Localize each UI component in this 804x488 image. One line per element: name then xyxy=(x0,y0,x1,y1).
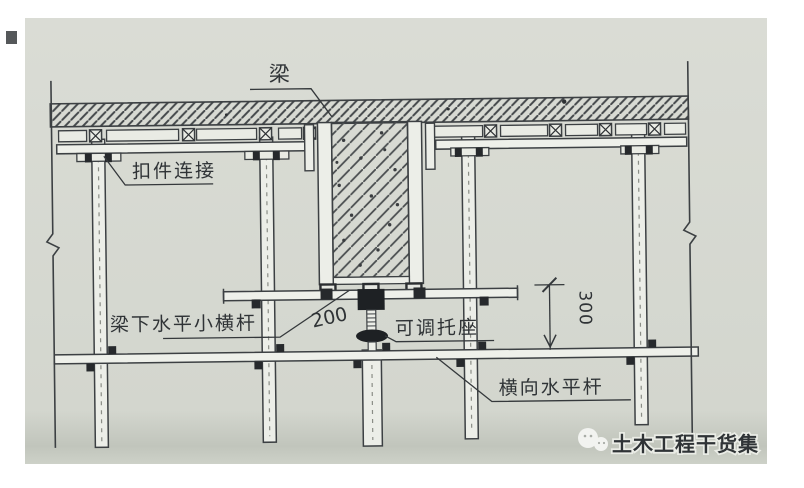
beam-bottom-bar-label: 梁下水平小横杆 xyxy=(110,312,257,336)
post-2 xyxy=(260,137,277,442)
beam-clamp-left xyxy=(304,125,314,171)
beam-side-form-right xyxy=(407,121,423,283)
beam-concrete-section xyxy=(331,122,409,278)
post-1 xyxy=(92,139,109,447)
scanned-page: 梁 扣件连接 梁下水平小横杆 200 可调托座 横向水平杆 xyxy=(0,0,804,488)
scan-artifact-mark xyxy=(6,31,17,44)
beam-side-form-left xyxy=(317,122,333,284)
beam-clamp-right xyxy=(425,123,435,169)
dim-300-label: 300 xyxy=(575,290,595,326)
transverse-bar-label: 横向水平杆 xyxy=(499,376,604,399)
post-3 xyxy=(462,135,479,439)
post-4 xyxy=(632,133,649,425)
coupler-label: 扣件连接 xyxy=(132,160,216,183)
threaded-rod xyxy=(367,310,376,332)
dim-line xyxy=(549,285,550,350)
watermark-text: 土木工程干货集 xyxy=(612,432,759,456)
scaffold-formwork-diagram: 梁 扣件连接 梁下水平小横杆 200 可调托座 横向水平杆 xyxy=(0,0,804,488)
center-jack-post xyxy=(362,350,382,446)
adjustable-bracket-label: 可调托座 xyxy=(395,317,479,340)
beam-assembly xyxy=(304,121,436,297)
beam-label: 梁 xyxy=(269,62,290,86)
u-head-body xyxy=(357,289,384,310)
annotation-adjustable-bracket: 可调托座 xyxy=(385,316,494,341)
